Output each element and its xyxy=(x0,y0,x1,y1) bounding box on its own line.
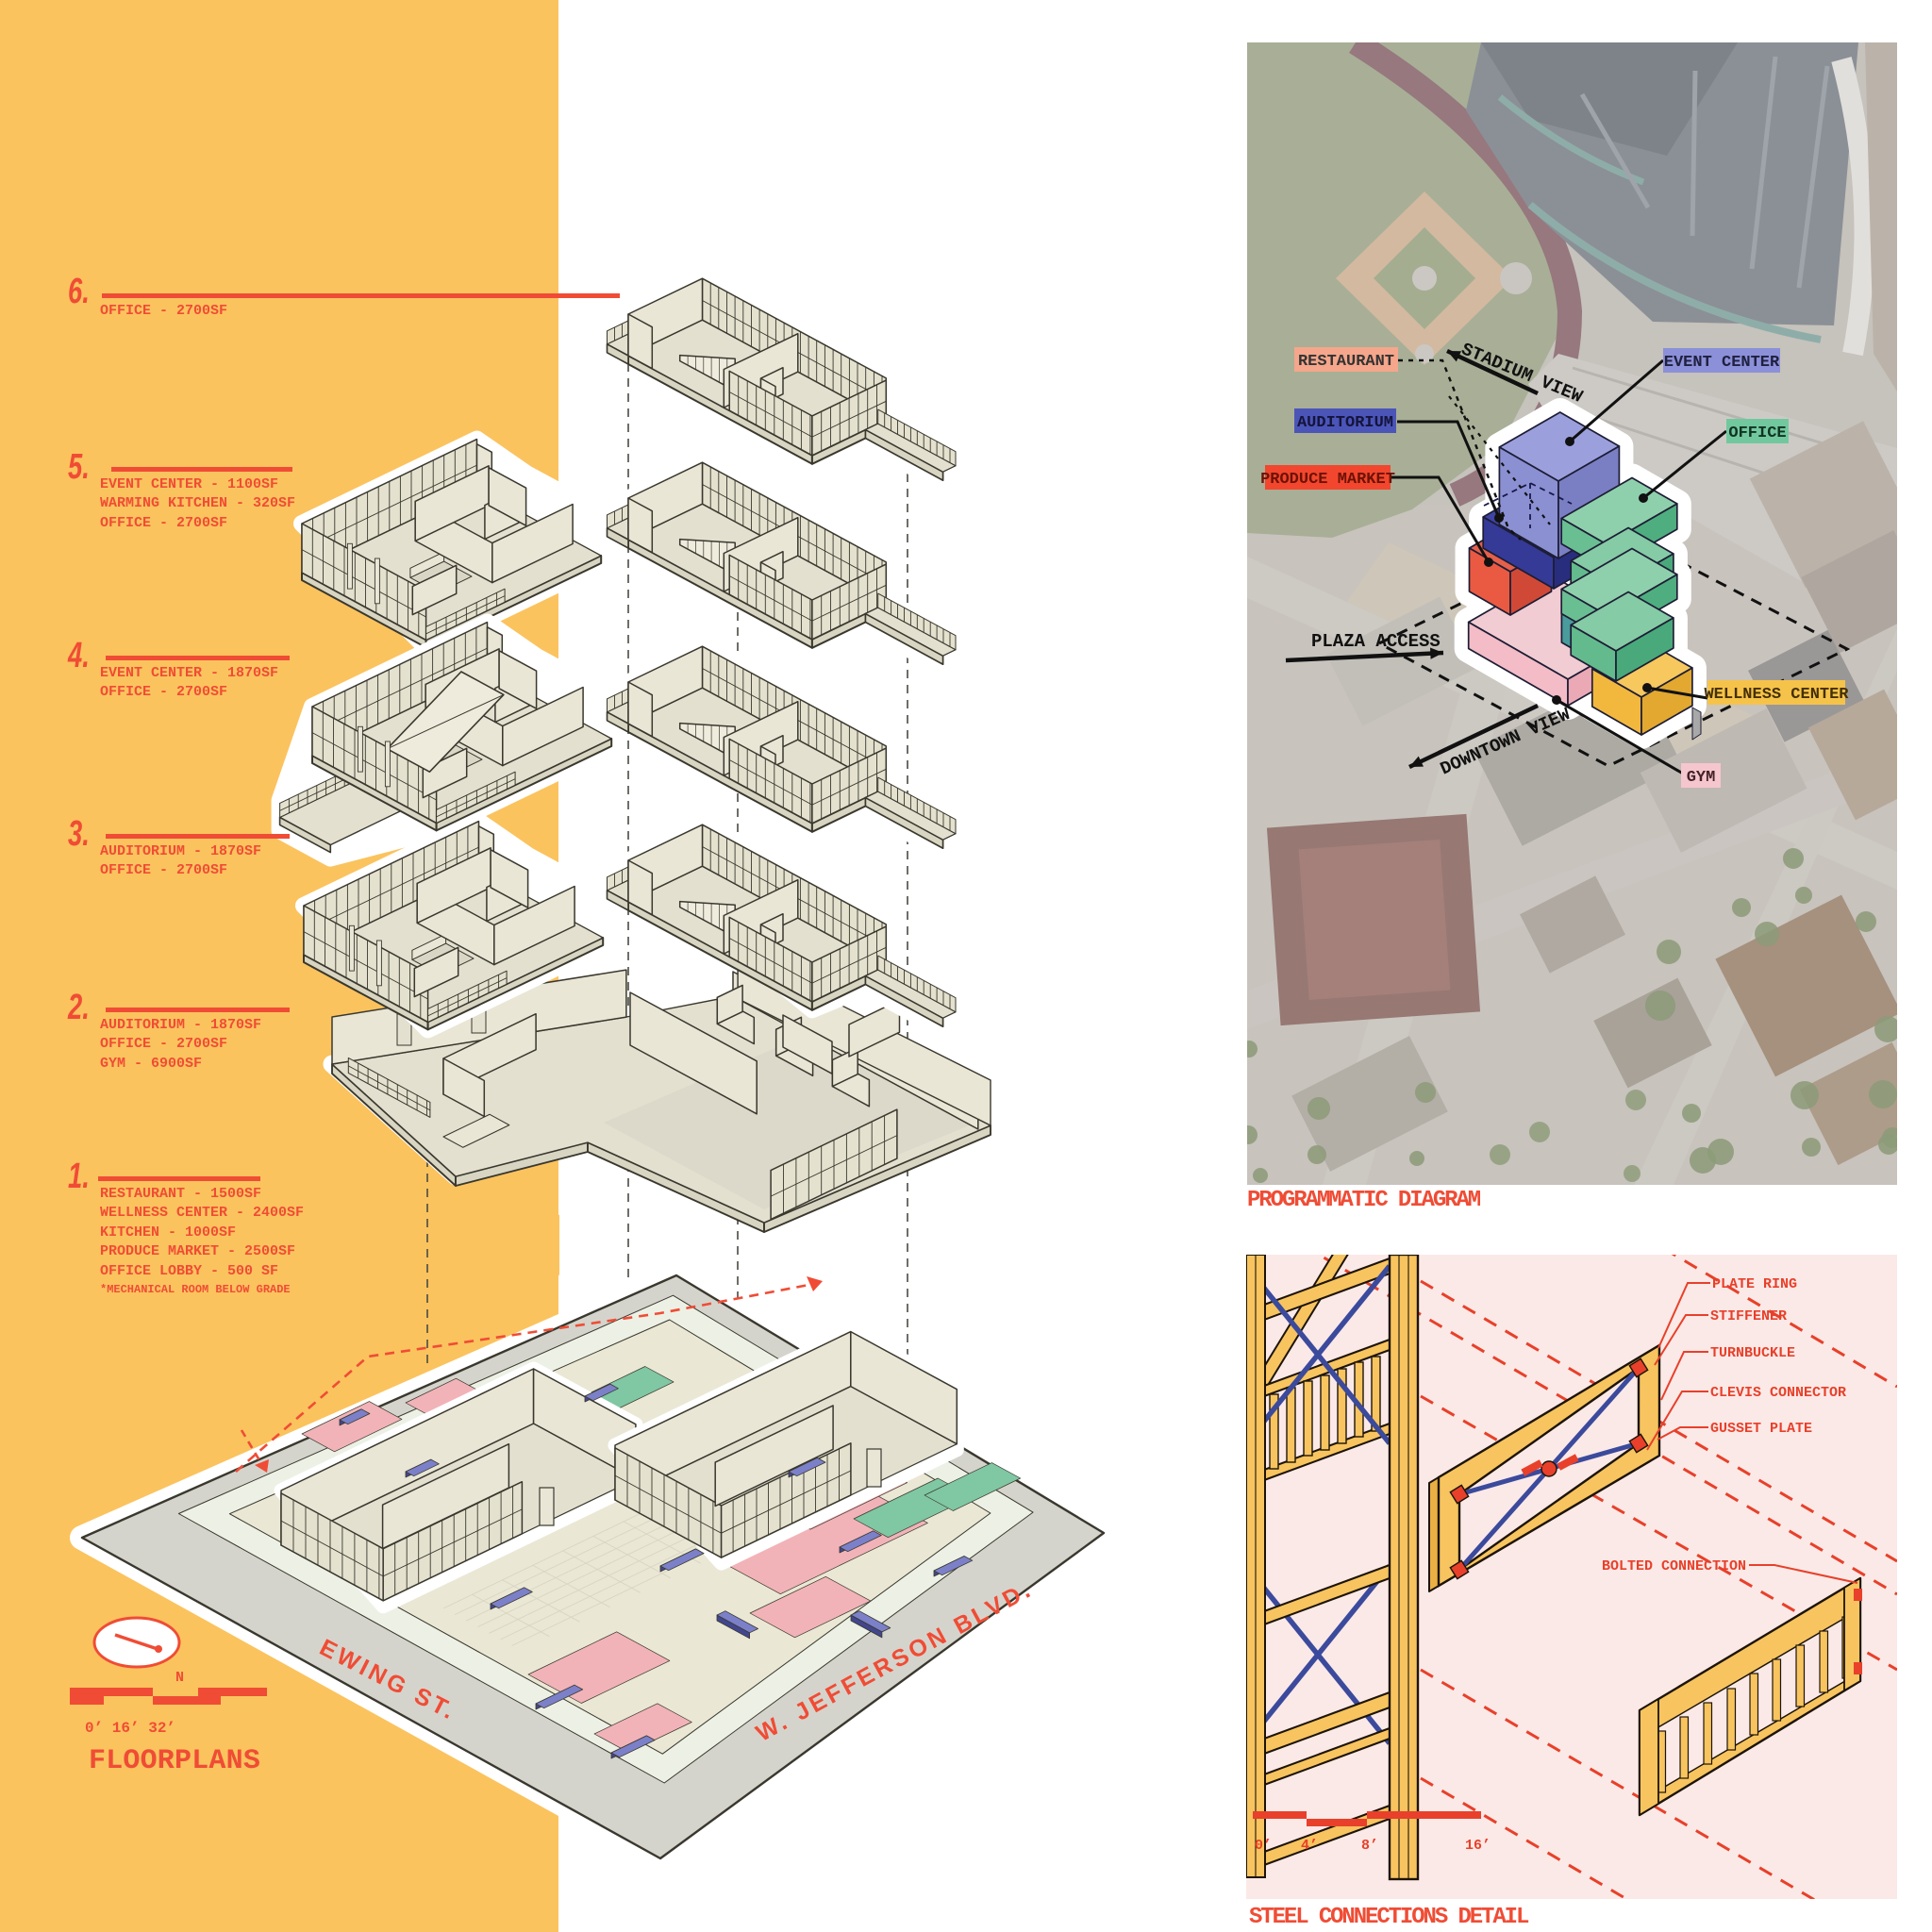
svg-text:PLAZA ACCESS: PLAZA ACCESS xyxy=(1311,631,1441,652)
svg-text:16’: 16’ xyxy=(1465,1838,1491,1854)
svg-text:RESTAURANT: RESTAURANT xyxy=(1298,353,1394,371)
svg-text:4’: 4’ xyxy=(1301,1838,1318,1854)
svg-text:FLOORPLANS: FLOORPLANS xyxy=(89,1745,260,1777)
svg-text:0’: 0’ xyxy=(1255,1838,1272,1854)
svg-text:BOLTED CONNECTION: BOLTED CONNECTION xyxy=(1602,1558,1746,1574)
svg-text:OFFICE: OFFICE xyxy=(1728,425,1786,442)
svg-text:GYM: GYM xyxy=(1687,769,1716,787)
svg-text:0’ 16’ 32’: 0’ 16’ 32’ xyxy=(85,1720,175,1737)
svg-text:STIFFENER: STIFFENER xyxy=(1710,1308,1787,1324)
svg-text:AUDITORIUM: AUDITORIUM xyxy=(1297,414,1393,432)
svg-text:TURNBUCKLE: TURNBUCKLE xyxy=(1710,1345,1795,1361)
svg-text:PRODUCE MARKET: PRODUCE MARKET xyxy=(1260,471,1395,489)
svg-text:WELLNESS CENTER: WELLNESS CENTER xyxy=(1704,686,1849,704)
svg-text:N: N xyxy=(175,1670,184,1686)
svg-text:EVENT CENTER: EVENT CENTER xyxy=(1664,354,1780,372)
svg-text:CLEVIS CONNECTOR: CLEVIS CONNECTOR xyxy=(1710,1385,1846,1401)
svg-text:PLATE RING: PLATE RING xyxy=(1712,1276,1797,1292)
svg-text:GUSSET PLATE: GUSSET PLATE xyxy=(1710,1421,1812,1437)
svg-text:8’: 8’ xyxy=(1361,1838,1378,1854)
